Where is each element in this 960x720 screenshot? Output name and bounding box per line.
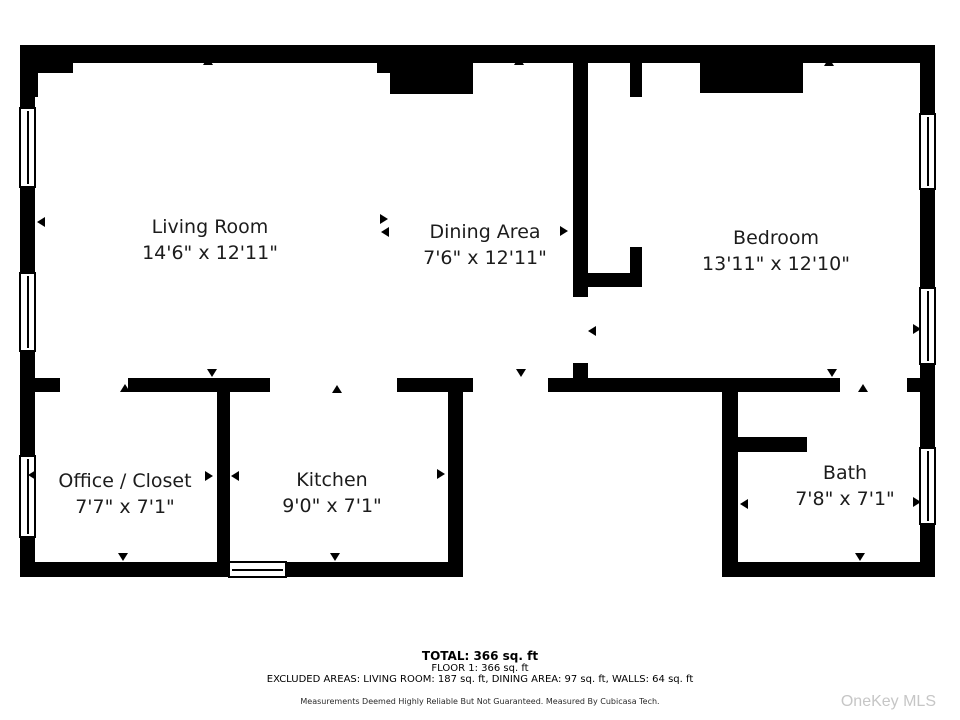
wall-office-kitchen-divider <box>217 392 230 562</box>
window-bedroom-right-lower <box>919 287 936 365</box>
wall-mid-wall-seg2 <box>128 378 270 392</box>
dimension-arrow-up-icon <box>824 58 834 66</box>
dimension-arrow-up-icon <box>120 384 130 392</box>
wall-block-bedroom-closet <box>700 63 803 93</box>
dimension-arrow-up-icon <box>203 57 213 65</box>
wall-outer-bottom-right <box>722 562 935 577</box>
floor-plan-canvas: Living Room14'6" x 12'11"Dining Area7'6"… <box>0 0 960 720</box>
dimension-arrow-right-icon <box>437 469 445 479</box>
dimension-arrow-down-icon <box>855 553 865 561</box>
dimension-arrow-right-icon <box>205 471 213 481</box>
dimension-arrow-right-icon <box>380 214 388 224</box>
window-living-left-lower <box>19 272 36 352</box>
floor1-area-text: FLOOR 1: 366 sq. ft <box>0 663 960 674</box>
wall-divider-stub <box>573 363 588 378</box>
room-name: Dining Area <box>423 219 547 245</box>
wall-kitchen-right-wall <box>448 392 463 562</box>
wall-bath-partition <box>738 437 807 452</box>
wall-mid-wall-seg3 <box>397 378 473 392</box>
room-dimensions: 13'11" x 12'10" <box>702 251 850 277</box>
window-kitchen-bottom <box>228 561 287 578</box>
room-dimensions: 9'0" x 7'1" <box>282 493 382 519</box>
room-label-dining-area: Dining Area7'6" x 12'11" <box>423 219 547 271</box>
onekey-mls-watermark: OneKey MLS <box>841 693 936 711</box>
wall-mid-wall-seg5 <box>907 378 935 392</box>
dimension-arrow-up-icon <box>858 384 868 392</box>
room-name: Bath <box>795 460 895 486</box>
dimension-arrow-right-icon <box>913 497 921 507</box>
wall-block-living-step <box>377 63 390 73</box>
wall-shaft-bottom <box>573 273 642 287</box>
dimension-arrow-left-icon <box>588 326 596 336</box>
dimension-arrow-down-icon <box>118 553 128 561</box>
excluded-areas-text: EXCLUDED AREAS: LIVING ROOM: 187 sq. ft,… <box>0 674 960 685</box>
wall-bath-left-wall <box>722 392 738 562</box>
wall-mid-wall-seg4 <box>548 378 840 392</box>
wall-topleft-step-b <box>38 63 73 73</box>
window-pane-line <box>927 451 929 521</box>
window-pane-line <box>927 117 929 186</box>
room-label-living-room: Living Room14'6" x 12'11" <box>142 214 278 266</box>
room-dimensions: 14'6" x 12'11" <box>142 240 278 266</box>
dimension-arrow-up-icon <box>332 385 342 393</box>
dimension-arrow-down-icon <box>330 553 340 561</box>
room-name: Bedroom <box>702 225 850 251</box>
room-dimensions: 7'7" x 7'1" <box>58 494 191 520</box>
dimension-arrow-right-icon <box>560 226 568 236</box>
dimension-arrow-left-icon <box>231 471 239 481</box>
wall-mid-wall-seg1 <box>20 378 60 392</box>
dimension-arrow-left-icon <box>381 227 389 237</box>
room-name: Living Room <box>142 214 278 240</box>
dimension-arrow-right-icon <box>913 324 921 334</box>
wall-topleft-step-a <box>20 63 38 97</box>
dimension-arrow-up-icon <box>514 57 524 65</box>
room-label-bath: Bath7'8" x 7'1" <box>795 460 895 512</box>
window-office-left <box>19 455 36 538</box>
window-pane-line <box>27 276 29 348</box>
dimension-arrow-left-icon <box>740 499 748 509</box>
window-living-left-upper <box>19 107 36 188</box>
window-pane-line <box>27 111 29 184</box>
dimension-arrow-left-icon <box>37 217 45 227</box>
window-pane-line <box>927 291 929 361</box>
room-label-bedroom: Bedroom13'11" x 12'10" <box>702 225 850 277</box>
window-bedroom-right-upper <box>919 113 936 190</box>
wall-block-living-dining <box>390 63 473 94</box>
disclaimer-text: Measurements Deemed Highly Reliable But … <box>0 697 960 706</box>
room-name: Kitchen <box>282 467 382 493</box>
dimension-arrow-down-icon <box>827 369 837 377</box>
total-area-text: TOTAL: 366 sq. ft <box>0 649 960 663</box>
room-label-kitchen: Kitchen9'0" x 7'1" <box>282 467 382 519</box>
wall-shaft-right-top <box>630 63 642 97</box>
window-pane-line <box>232 569 283 571</box>
room-dimensions: 7'6" x 12'11" <box>423 245 547 271</box>
dimension-arrow-down-icon <box>207 369 217 377</box>
dimension-arrow-down-icon <box>516 369 526 377</box>
dimension-arrow-left-icon <box>28 470 36 480</box>
room-dimensions: 7'8" x 7'1" <box>795 486 895 512</box>
wall-outer-top <box>20 45 935 63</box>
window-bath-right <box>919 447 936 525</box>
wall-divider-dining-bedroom <box>573 63 588 297</box>
room-label-office-closet: Office / Closet7'7" x 7'1" <box>58 468 191 520</box>
room-name: Office / Closet <box>58 468 191 494</box>
